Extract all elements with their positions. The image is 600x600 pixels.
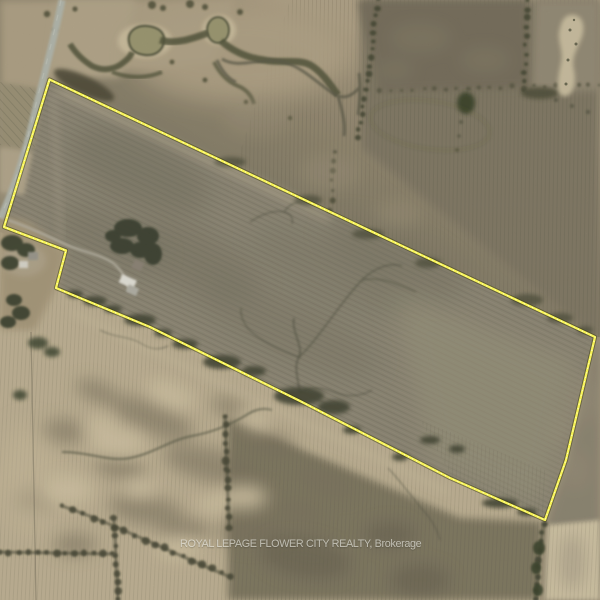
svg-text:ROYAL LEPAGE FLOWER CITY REALT: ROYAL LEPAGE FLOWER CITY REALTY, Brokera… bbox=[180, 538, 422, 550]
